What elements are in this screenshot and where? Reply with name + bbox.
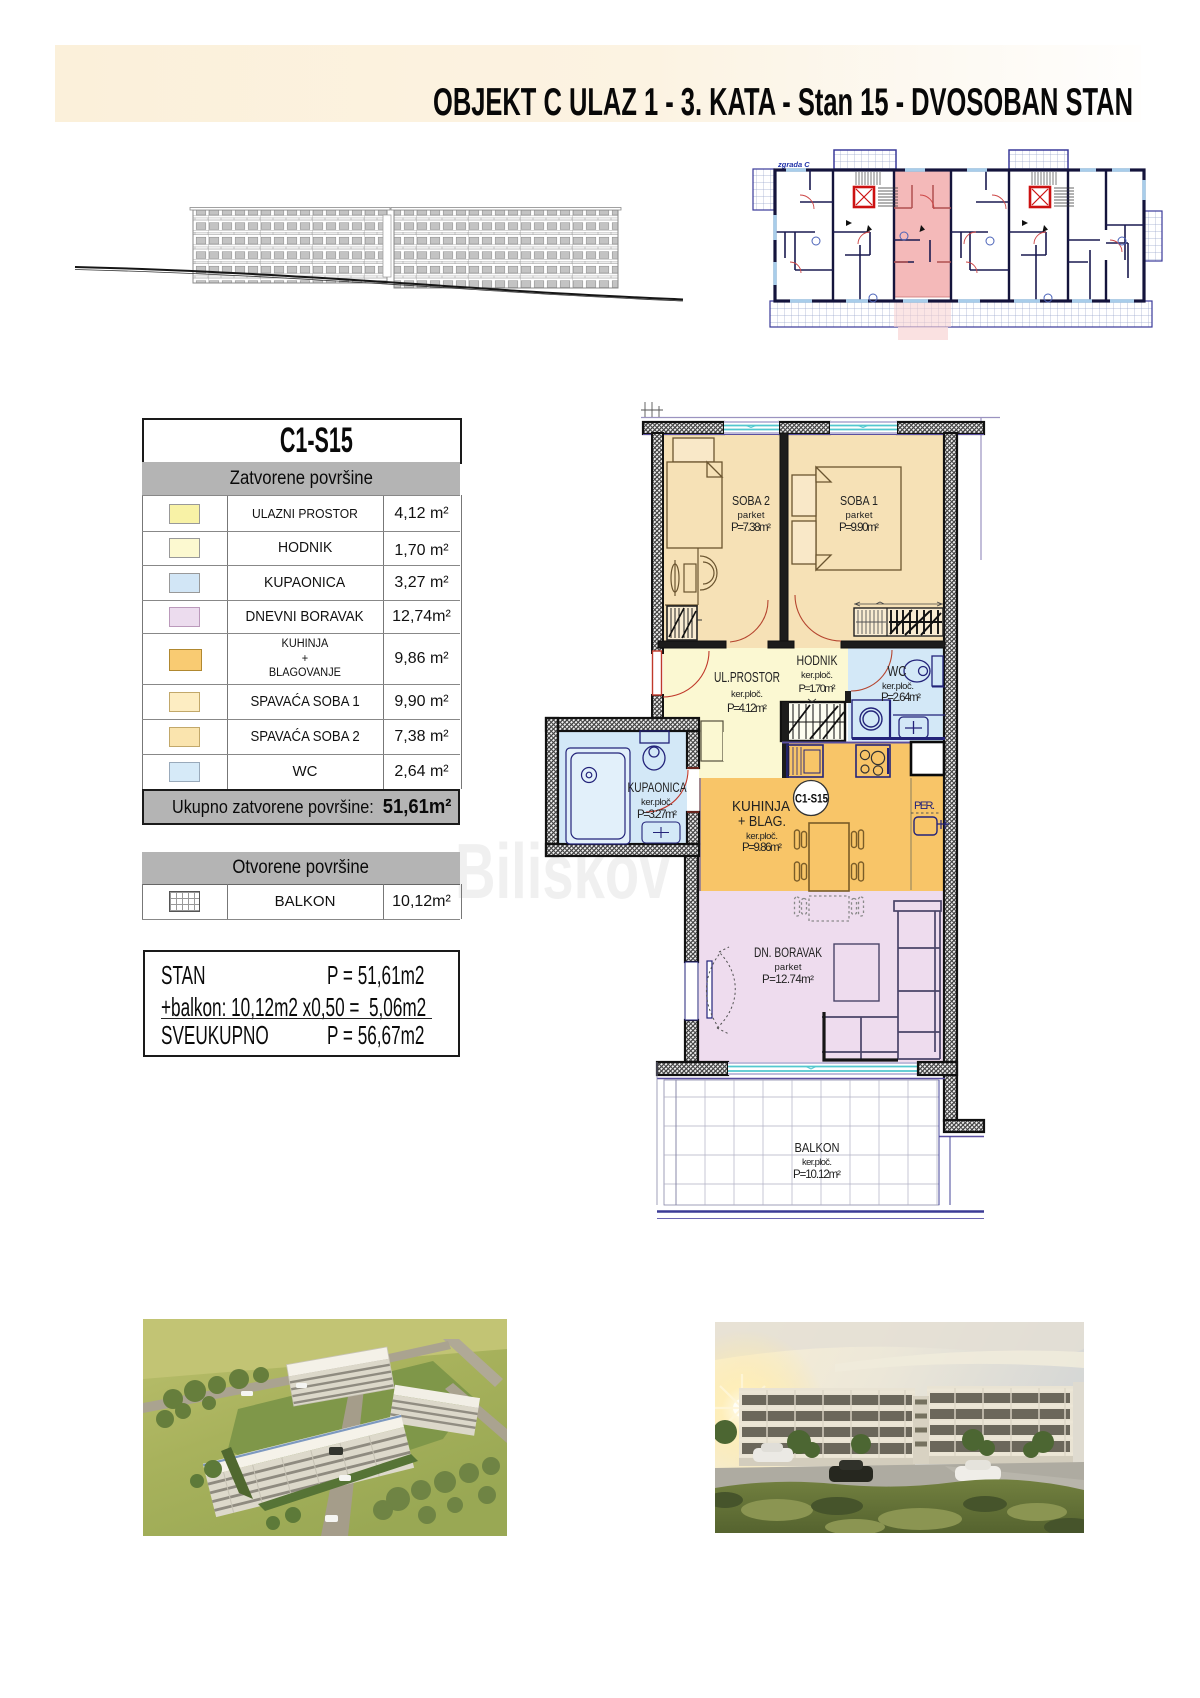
svg-text:P=9.86m²: P=9.86m² [742, 842, 782, 854]
svg-text:P=10.12m²: P=10.12m² [793, 1169, 841, 1181]
svg-text:parket: parket [775, 962, 802, 973]
svg-text:P=4.12m²: P=4.12m² [727, 703, 767, 715]
svg-text:BALKON: BALKON [795, 1140, 840, 1155]
svg-text:P=1.70m²: P=1.70m² [799, 683, 836, 695]
svg-text:PER.: PER. [914, 800, 935, 812]
svg-text:+ BLAG.: + BLAG. [738, 814, 786, 830]
svg-text:zgrada C: zgrada C [777, 160, 810, 169]
svg-text:ker.ploč.: ker.ploč. [641, 797, 673, 808]
svg-text:ker.ploč.: ker.ploč. [731, 689, 763, 700]
svg-text:ker.ploč.: ker.ploč. [802, 1157, 832, 1168]
svg-text:KUPAONICA: KUPAONICA [628, 780, 687, 795]
svg-text:P=12.74m²: P=12.74m² [762, 974, 814, 986]
svg-text:parket: parket [738, 510, 765, 521]
svg-text:KUHINJA: KUHINJA [732, 799, 790, 815]
svg-text:parket: parket [846, 510, 873, 521]
svg-text:SOBA 2: SOBA 2 [732, 493, 770, 508]
svg-text:SOBA 1: SOBA 1 [840, 493, 878, 508]
svg-text:P=3.27m²: P=3.27m² [637, 809, 677, 821]
svg-text:C1-S15: C1-S15 [795, 792, 828, 806]
svg-text:ker.ploč.: ker.ploč. [801, 670, 833, 681]
svg-text:P=7.38m²: P=7.38m² [731, 522, 771, 534]
svg-text:P=2.64m²: P=2.64m² [881, 692, 921, 704]
svg-text:WC: WC [888, 664, 907, 680]
svg-text:P=9.90m²: P=9.90m² [839, 522, 879, 534]
svg-text:HODNIK: HODNIK [797, 653, 838, 668]
svg-text:UL.PROSTOR: UL.PROSTOR [714, 670, 780, 686]
svg-text:DN. BORAVAK: DN. BORAVAK [754, 945, 822, 960]
svg-text:ker.ploč.: ker.ploč. [746, 831, 778, 842]
svg-text:ker.ploč.: ker.ploč. [882, 681, 914, 692]
